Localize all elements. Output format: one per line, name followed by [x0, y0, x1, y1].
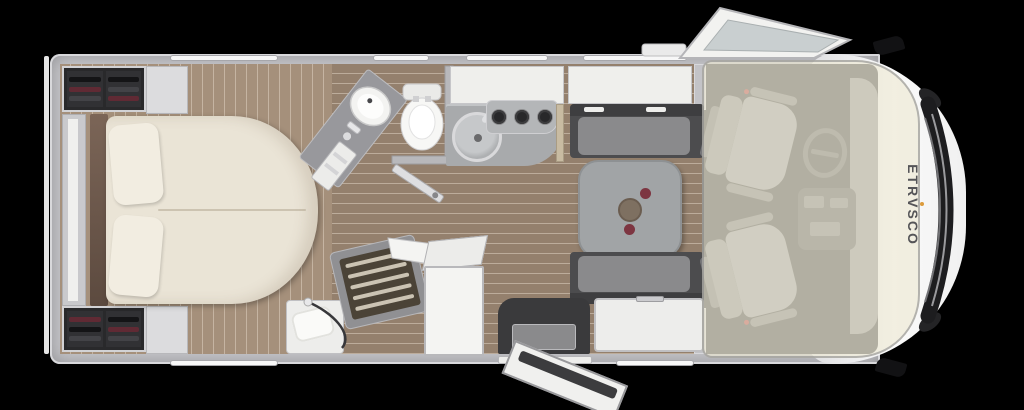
brand-logo: ETRVSCO	[901, 157, 925, 253]
storage-bench-handle	[636, 296, 664, 302]
fruit	[640, 188, 651, 199]
bowl	[618, 198, 642, 222]
wing-mirror-top	[873, 34, 906, 56]
clothes	[69, 327, 101, 332]
wardrobe-shelf	[67, 71, 103, 107]
fruit	[624, 224, 635, 235]
bedside-cabinet-top	[146, 66, 188, 114]
burner	[538, 110, 552, 124]
rear-shelf	[62, 114, 86, 306]
burner	[515, 110, 529, 124]
wing-mirror-bottom	[875, 356, 908, 378]
wardrobe-rear-top	[62, 66, 146, 112]
dinette-bench-top	[570, 104, 704, 158]
rear-shelf-slot	[68, 119, 78, 301]
window-strip	[466, 55, 548, 61]
wardrobe-shelf	[106, 71, 142, 107]
shower-hose	[308, 302, 345, 348]
burner	[492, 110, 506, 124]
clothes	[69, 96, 101, 101]
pillow-top	[108, 122, 165, 206]
toilet	[401, 84, 443, 150]
rear-bumper-edge	[44, 56, 49, 354]
corner-washbasin	[299, 69, 407, 188]
wardrobe-shelf	[106, 311, 142, 347]
clothes	[108, 336, 140, 341]
front-grille	[918, 78, 1024, 342]
dinette-sideboard	[568, 66, 692, 104]
clothes	[108, 96, 140, 101]
tall-cabinet	[424, 266, 484, 356]
bathroom-door	[392, 164, 445, 203]
floorplan-stage: ETRVSCO	[0, 0, 1024, 410]
shower-head	[304, 298, 312, 306]
door-step	[642, 44, 686, 56]
clothes	[69, 77, 101, 82]
window-strip	[170, 360, 278, 366]
clothes	[108, 317, 140, 322]
pillow-bottom	[108, 214, 165, 298]
bench-cushion	[578, 117, 690, 155]
brand-logo-text-v: V	[905, 198, 921, 209]
brand-logo-text-pre: ETR	[905, 164, 921, 198]
bench-cushion	[578, 256, 690, 292]
clothes	[69, 336, 101, 341]
drop-down-bed-overlay	[702, 60, 920, 358]
window-strip	[616, 360, 694, 366]
window-strip	[170, 55, 278, 61]
wardrobe-rear-bottom	[62, 306, 146, 352]
clothes	[69, 87, 101, 92]
clothes	[108, 77, 140, 82]
clothes	[69, 317, 101, 322]
kitchen-dinette-divider	[556, 104, 564, 162]
bedside-cabinet-bottom	[146, 306, 188, 354]
kitchen-overhead-counter	[450, 66, 564, 104]
clothes	[108, 87, 140, 92]
storage-bench	[594, 298, 704, 352]
bench-handle	[646, 107, 666, 112]
bathroom-wall	[392, 156, 452, 164]
clothes	[108, 327, 140, 332]
dinette-table	[578, 160, 682, 258]
cab-door-open	[640, 0, 860, 60]
bench-handle	[584, 107, 604, 112]
wardrobe-shelf	[67, 311, 103, 347]
brand-logo-text-post: SCO	[905, 210, 921, 246]
sink-drain	[474, 134, 482, 142]
hob-3-burner	[486, 100, 558, 134]
